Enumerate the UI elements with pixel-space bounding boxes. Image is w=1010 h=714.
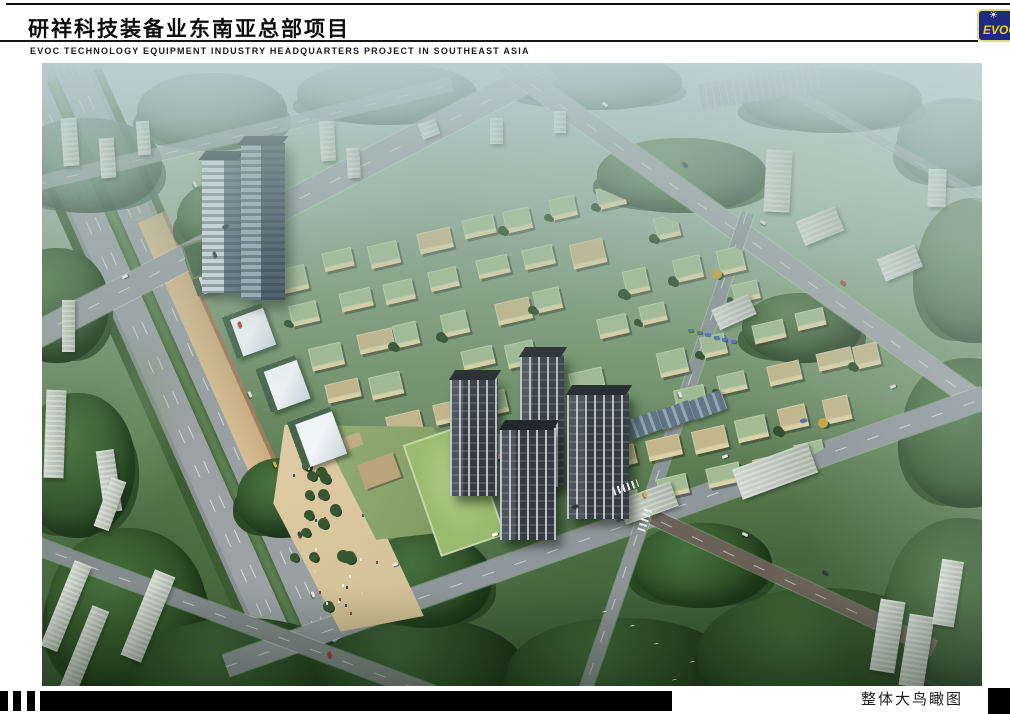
person-dot [339, 598, 341, 601]
plaza-tree [290, 553, 299, 562]
person-dot [315, 519, 317, 522]
plaza-tree [323, 601, 334, 612]
campus-building [321, 247, 355, 272]
apartment-slab [99, 138, 117, 179]
person-dot [319, 591, 321, 594]
tree [544, 214, 552, 222]
campus-building [476, 254, 511, 280]
midrise-tower [450, 378, 498, 496]
campus-building [324, 378, 362, 404]
person-dot [361, 592, 363, 595]
person-dot [315, 548, 317, 551]
apartment-slab [490, 118, 503, 144]
truck [714, 336, 719, 339]
footer-corner-square [988, 688, 1010, 714]
campus-building [382, 277, 416, 304]
person-dot [349, 575, 351, 578]
tree [773, 426, 783, 436]
tree [695, 351, 703, 359]
person-dot [345, 604, 347, 607]
person-dot [368, 531, 370, 534]
campus-building [338, 286, 374, 311]
apartment-slab [136, 121, 151, 156]
person-dot [293, 474, 295, 477]
drawing-caption: 整体大鸟瞰图 [675, 688, 983, 712]
tree [848, 362, 857, 371]
apartment-slab [554, 111, 566, 133]
truck [697, 331, 702, 334]
footer-barcode-stripe [0, 691, 8, 711]
campus-building [288, 300, 320, 327]
campus-building [656, 347, 690, 378]
campus-building [548, 194, 578, 220]
apartment-slab [346, 148, 361, 179]
presentation-board: 研祥科技装备业东南亚总部项目 EVOC TECHNOLOGY EQUIPMENT… [0, 0, 1010, 714]
person-dot [317, 471, 319, 474]
logo-wordmark: EVOC [983, 23, 1010, 37]
person-dot [360, 558, 362, 561]
tree [712, 269, 723, 280]
campus-building [308, 342, 346, 372]
footer-barcode-stripe [13, 691, 21, 711]
truck [705, 333, 710, 336]
office-block [222, 303, 277, 359]
apartment-slab [319, 121, 336, 162]
apartment-slab [62, 300, 75, 352]
person-dot [342, 584, 344, 587]
hq-tower-roof [198, 151, 245, 160]
tree [498, 226, 506, 234]
header-top-rule [6, 3, 1010, 5]
campus-building [427, 266, 460, 292]
tree [528, 306, 536, 314]
plaza-tree [301, 528, 311, 538]
tree [436, 332, 446, 342]
project-title-chinese: 研祥科技装备业东南亚总部项目 [28, 13, 350, 43]
campus-building [416, 226, 454, 254]
campus-building [569, 237, 608, 269]
campus-building [460, 345, 496, 371]
person-dot [376, 561, 378, 564]
campus-building [691, 424, 730, 454]
campus-building [461, 213, 497, 239]
footer-black-bar [40, 691, 672, 711]
person-dot [350, 612, 352, 615]
hq-tower-roof [237, 136, 288, 145]
evoc-logo: ☀ EVOC [977, 9, 1010, 42]
car [822, 570, 829, 575]
car [890, 384, 897, 389]
tree [284, 320, 292, 328]
apartment-slab [763, 149, 792, 212]
campus-building [766, 360, 803, 387]
person-dot [314, 570, 316, 573]
truck [722, 338, 727, 341]
plaza-tree [307, 471, 317, 481]
campus-building [638, 302, 667, 326]
person-dot [346, 586, 348, 589]
plaza-tree [330, 504, 342, 516]
plaza-tree [343, 551, 356, 564]
hq-tower-right [241, 143, 285, 300]
midrise-tower [500, 428, 556, 540]
campus-building [794, 307, 826, 332]
campus-building [367, 240, 401, 270]
aerial-rendering [42, 63, 982, 686]
campus-building [368, 370, 405, 399]
tree [634, 319, 641, 326]
apartment-slab [43, 390, 66, 479]
campus-building [521, 243, 556, 269]
footer-barcode-stripe [27, 691, 35, 711]
person-dot [304, 518, 306, 521]
truck [731, 340, 736, 343]
tree [591, 203, 599, 211]
campus-building [494, 296, 533, 325]
apartment-slab [927, 169, 946, 208]
campus-building [596, 313, 630, 340]
plaza-tree [318, 489, 329, 500]
project-title-english: EVOC TECHNOLOGY EQUIPMENT INDUSTRY HEADQ… [30, 46, 530, 56]
midrise-tower [567, 393, 629, 519]
campus-building [751, 319, 786, 345]
campus-building [532, 286, 563, 313]
campus-building [502, 206, 533, 233]
tree [618, 289, 628, 299]
tree [818, 418, 829, 429]
tree [649, 234, 658, 243]
campus-building [645, 433, 683, 461]
truck [688, 329, 693, 332]
logo-starburst-icon: ☀ [989, 10, 998, 21]
person-dot [326, 602, 328, 605]
tree [668, 276, 678, 286]
apartment-slab [60, 118, 79, 167]
person-dot [324, 517, 326, 520]
campus-building [734, 413, 770, 442]
header-divider-rule [0, 40, 978, 42]
tree [388, 342, 397, 351]
